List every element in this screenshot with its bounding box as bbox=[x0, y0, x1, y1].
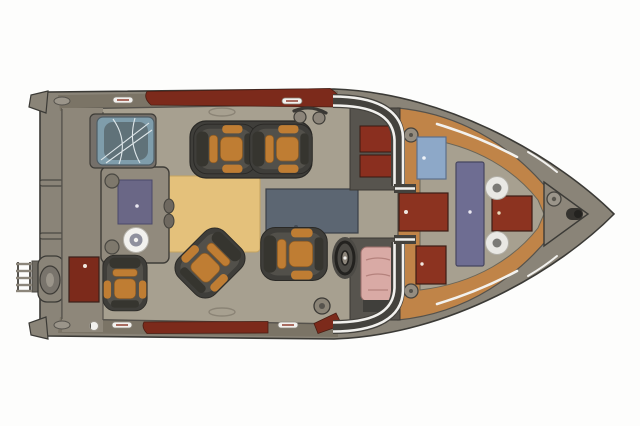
cooler bbox=[69, 257, 99, 302]
floorplan-svg bbox=[0, 0, 640, 426]
bow-trim-cleat-top-center bbox=[409, 133, 413, 137]
bench-seat-left bbox=[194, 124, 257, 174]
helm-seat bbox=[261, 228, 328, 281]
boarding-ladder bbox=[16, 261, 39, 292]
boat-floorplan bbox=[0, 0, 640, 426]
bow-hatch-latch bbox=[422, 156, 426, 160]
bow-trim-cleat-bottom-center bbox=[409, 289, 413, 293]
stern-corner-top bbox=[29, 91, 48, 113]
bow-seat-port bbox=[416, 246, 446, 284]
sink-counter bbox=[118, 180, 152, 224]
steering-wheel bbox=[332, 237, 358, 279]
bow-table bbox=[456, 162, 484, 266]
transom-handle-top bbox=[40, 180, 63, 186]
cleat-top-left bbox=[113, 97, 133, 103]
stern-cleat-top bbox=[54, 97, 70, 105]
stern-bench-covered bbox=[90, 114, 156, 168]
port-console-panel-2 bbox=[360, 155, 396, 177]
bow-hatch bbox=[417, 137, 446, 179]
bow-seat-forward bbox=[492, 196, 532, 231]
gunwale-insert-top bbox=[146, 89, 340, 108]
walkthrough-door bbox=[399, 193, 448, 231]
cleat-bottom-right bbox=[278, 322, 298, 328]
pedestal-seat-base-bottom bbox=[486, 232, 509, 255]
companion-seat bbox=[103, 255, 147, 311]
stern-corner-bottom bbox=[29, 317, 48, 339]
pedestal-seat-base-top bbox=[486, 177, 509, 200]
sun-pad bbox=[266, 189, 358, 233]
helm-cup-holder bbox=[314, 298, 330, 314]
bow-cleat-center bbox=[552, 197, 556, 201]
galley-console bbox=[101, 167, 174, 263]
bow-light bbox=[566, 208, 583, 220]
gunwale-insert-bottom bbox=[143, 322, 268, 334]
bench-seat-right bbox=[250, 124, 313, 174]
cleat-top-right bbox=[282, 98, 302, 104]
cup-holder-top bbox=[105, 174, 119, 188]
cup-holder-bottom bbox=[105, 240, 119, 254]
stern-cleat-bottom bbox=[54, 321, 70, 329]
console-latch-2 bbox=[164, 214, 174, 228]
stove-burner-center bbox=[134, 238, 138, 242]
cleat-bottom-left bbox=[112, 322, 132, 328]
console-latch-1 bbox=[164, 199, 174, 213]
transom-handle-bottom bbox=[40, 233, 63, 239]
sink-drain bbox=[135, 204, 139, 208]
outboard-motor bbox=[38, 256, 64, 302]
